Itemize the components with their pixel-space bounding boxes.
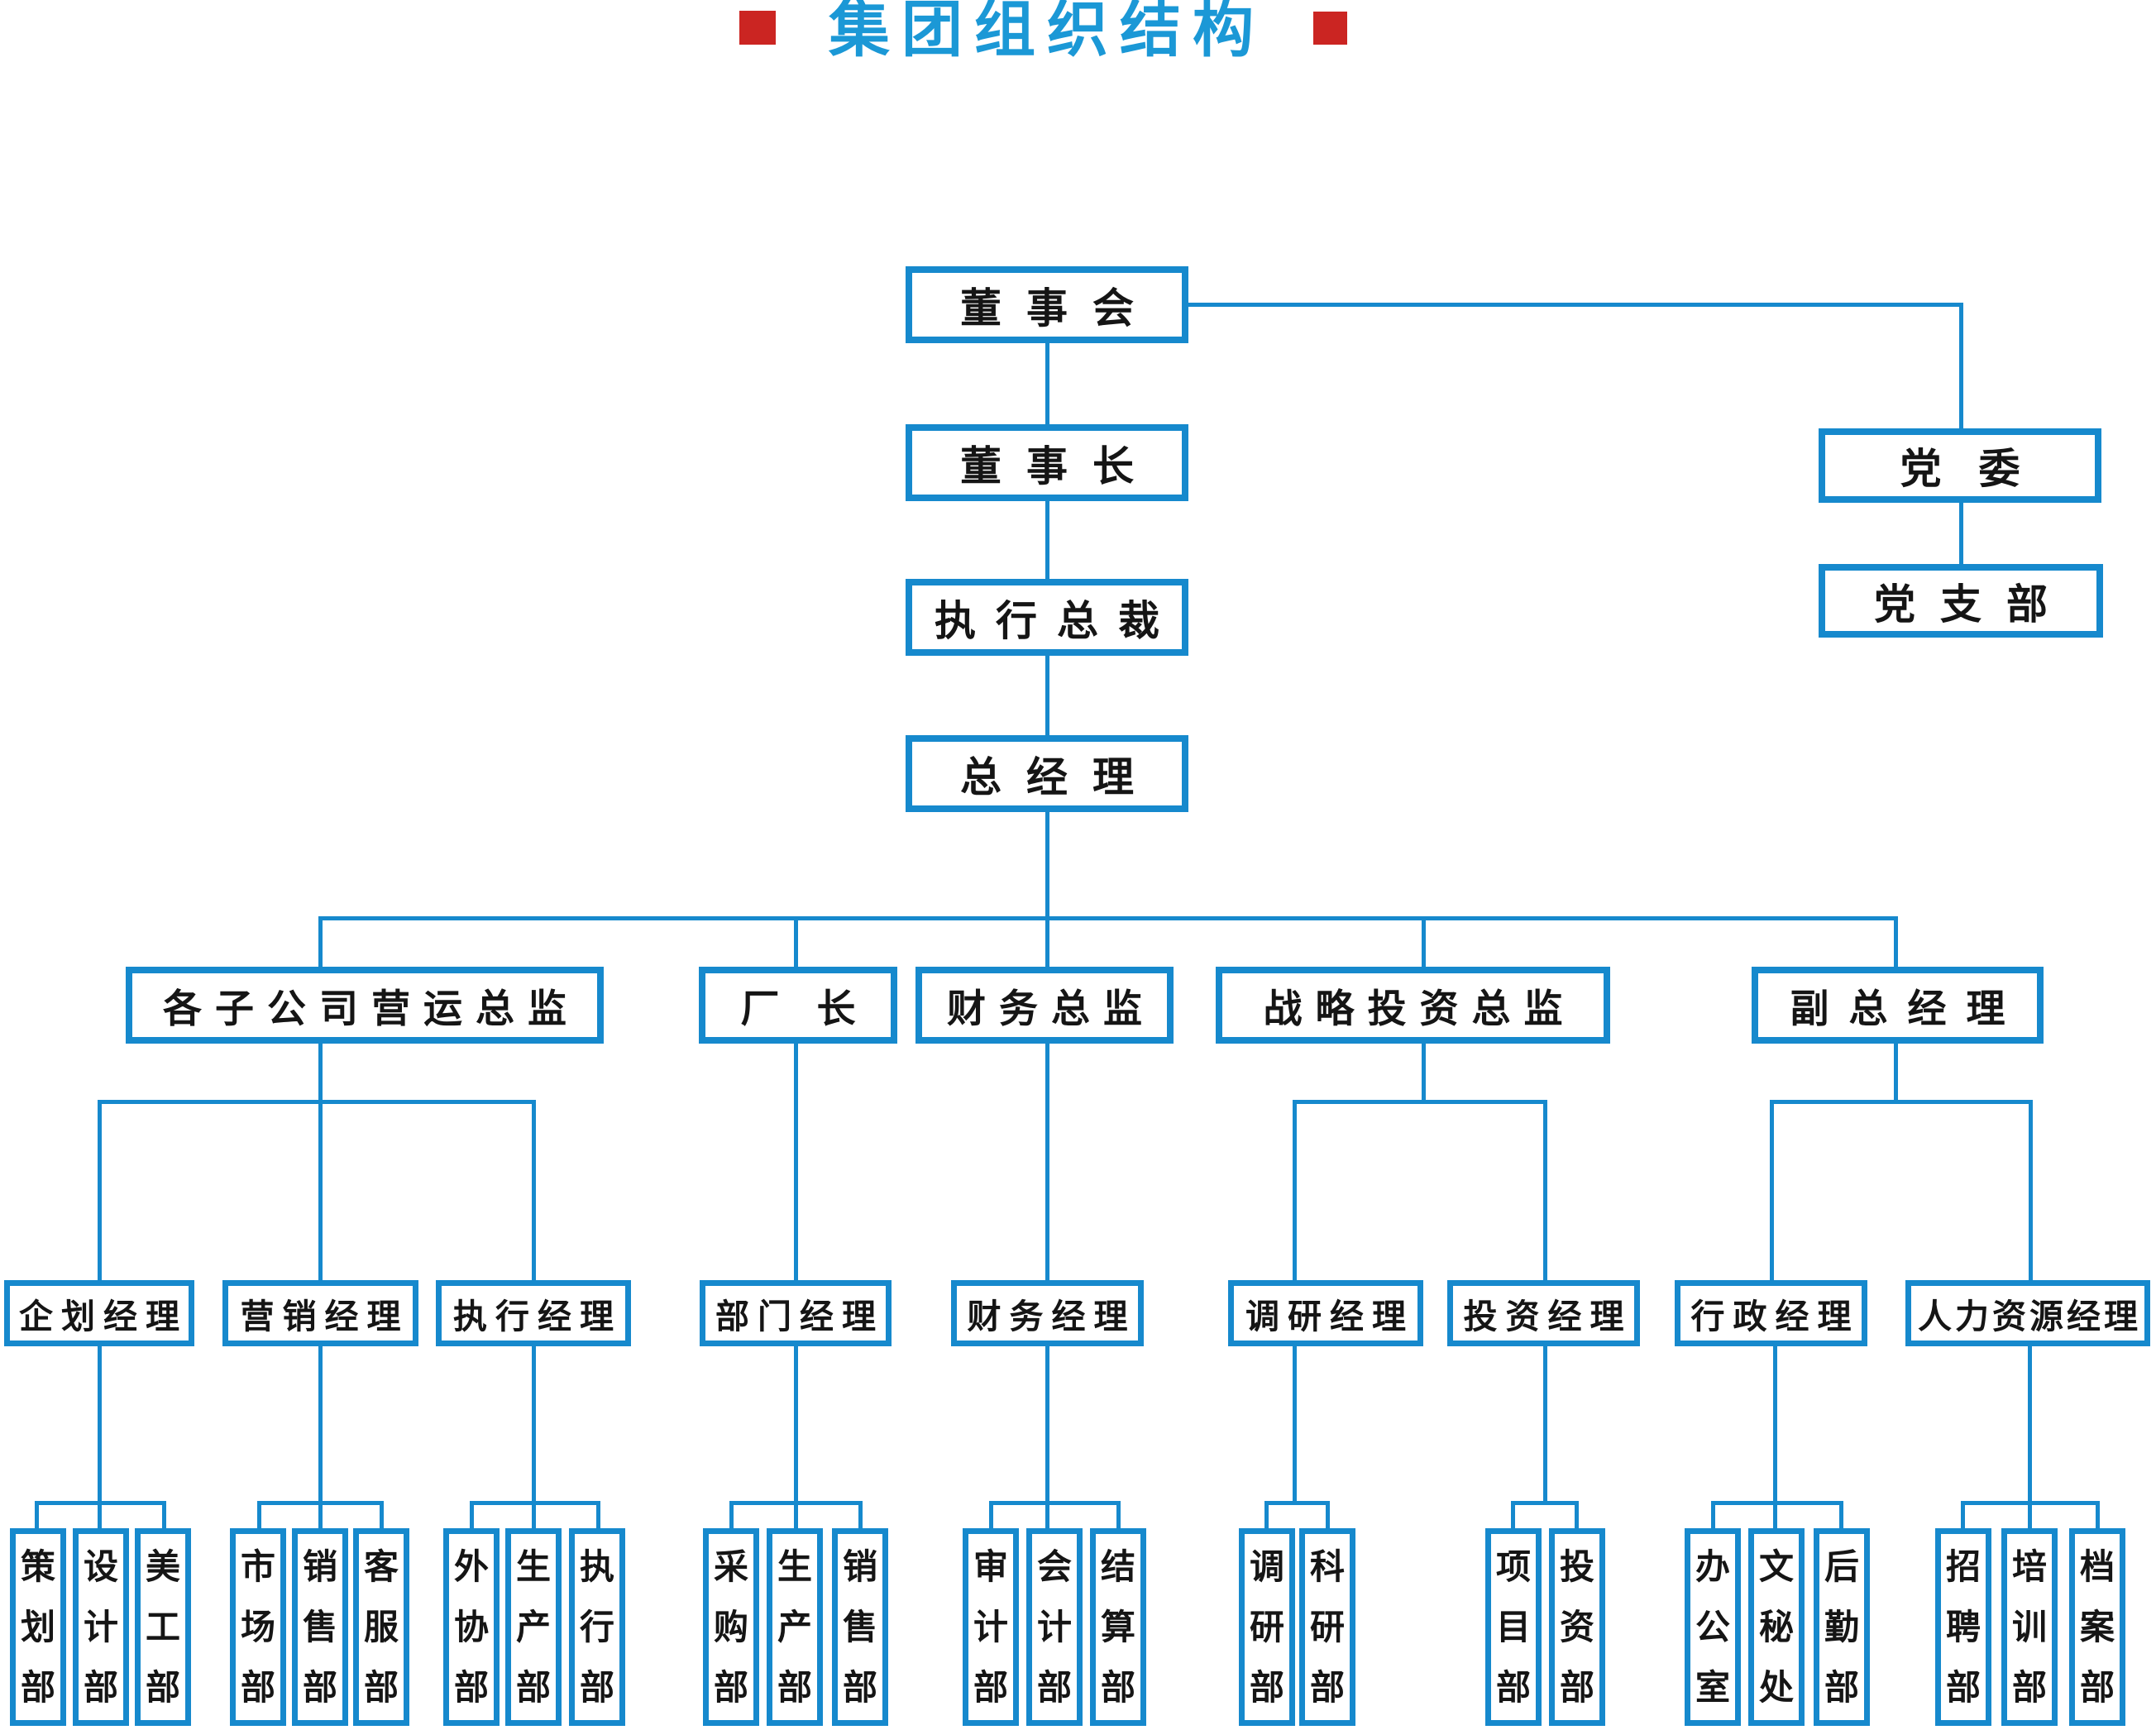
node-factory-director: 厂长: [699, 967, 897, 1044]
dept-box-planning: 策划部: [10, 1528, 66, 1726]
connector: [318, 1044, 323, 1100]
dept-box-sales: 销售部: [292, 1528, 348, 1726]
connector: [98, 1501, 102, 1528]
connector: [1264, 1501, 1330, 1528]
connector: [1511, 1501, 1579, 1528]
connector: [1770, 1100, 2033, 1280]
node-general-manager: 总经理: [906, 735, 1188, 812]
dept-box-design: 设计部: [73, 1528, 129, 1726]
dept-box-production2: 生产部: [767, 1528, 823, 1726]
node-subsidiary-ops-director: 各子公司营运总监: [126, 967, 604, 1044]
connector: [98, 1100, 536, 1280]
connector: [318, 1346, 323, 1501]
connector: [1422, 1044, 1426, 1100]
connector: [1711, 1501, 1843, 1528]
dept-box-customer-service: 客服部: [353, 1528, 409, 1726]
dept-box-research: 调研部: [1239, 1528, 1295, 1726]
dept-box-logistics: 后勤部: [1814, 1528, 1870, 1726]
connector: [1422, 916, 1426, 967]
connector: [1045, 1346, 1049, 1501]
dept-box-art: 美工部: [135, 1528, 191, 1726]
dept-box-office: 办公室: [1685, 1528, 1741, 1726]
connector: [1773, 1501, 1777, 1528]
connector: [318, 1501, 323, 1528]
dept-box-execution: 执行部: [569, 1528, 625, 1726]
node-department-manager: 部门经理: [700, 1280, 892, 1346]
connector: [318, 1100, 323, 1280]
dept-box-outsourcing: 外协部: [443, 1528, 500, 1726]
dept-box-settlement: 结算部: [1090, 1528, 1146, 1726]
connector: [1894, 1044, 1898, 1100]
dept-box-training: 培训部: [2001, 1528, 2058, 1726]
connector: [1045, 1044, 1049, 1280]
dept-box-market: 市场部: [230, 1528, 286, 1726]
connector: [1045, 500, 1049, 579]
connector: [98, 1346, 102, 1501]
node-investment-manager: 投资经理: [1447, 1280, 1640, 1346]
connector: [1959, 500, 1963, 566]
node-finance-manager: 财务经理: [951, 1280, 1144, 1346]
connector: [1045, 812, 1049, 916]
connector: [1045, 343, 1049, 424]
connector: [1188, 303, 1963, 428]
dept-box-archives: 档案部: [2069, 1528, 2125, 1726]
node-admin-manager: 行政经理: [1675, 1280, 1867, 1346]
connector: [2028, 1501, 2032, 1528]
dept-box-recruitment: 招聘部: [1935, 1528, 1991, 1726]
dept-box-project: 项目部: [1485, 1528, 1542, 1726]
node-research-manager: 调研经理: [1228, 1280, 1423, 1346]
dept-box-purchasing: 采购部: [703, 1528, 759, 1726]
dept-box-accounting: 会计部: [1026, 1528, 1083, 1726]
connector: [1045, 916, 1049, 967]
connector: [794, 1044, 798, 1280]
node-strategic-investment-director: 战略投资总监: [1216, 967, 1610, 1044]
node-planning-manager: 企划经理: [4, 1280, 194, 1346]
dept-box-investment: 投资部: [1549, 1528, 1605, 1726]
node-party-branch: 党支部: [1819, 564, 2103, 638]
dept-box-production: 生产部: [505, 1528, 562, 1726]
connector: [532, 1501, 536, 1528]
connector: [2028, 1346, 2032, 1501]
org-chart: 集团组织结构 董事会 董事长 执行总裁 总经理: [0, 0, 2156, 1730]
node-board: 董事会: [906, 266, 1188, 343]
connector: [794, 916, 798, 967]
connector: [1293, 1100, 1547, 1280]
connector: [1045, 1501, 1049, 1528]
connector: [318, 916, 1898, 967]
connector: [532, 1346, 536, 1501]
connector: [1543, 1346, 1547, 1501]
connector: [1773, 1346, 1777, 1501]
node-chairman: 董事长: [906, 424, 1188, 501]
connector: [989, 1501, 1121, 1528]
dept-box-sales2: 销售部: [832, 1528, 888, 1726]
connector: [794, 1501, 798, 1528]
connector: [794, 1346, 798, 1501]
node-execution-manager: 执行经理: [436, 1280, 631, 1346]
title-right-red-square-icon: [1313, 12, 1347, 45]
page-title: 集团组织结构: [0, 0, 2094, 66]
node-finance-director: 财务总监: [915, 967, 1174, 1044]
node-hr-manager: 人力资源经理: [1905, 1280, 2150, 1346]
node-party-committee: 党委: [1819, 428, 2101, 503]
node-marketing-manager: 营销经理: [222, 1280, 418, 1346]
connector: [1293, 1346, 1297, 1501]
dept-box-audit: 审计部: [963, 1528, 1019, 1726]
node-exec-president: 执行总裁: [906, 579, 1188, 656]
dept-box-secretary: 文秘处: [1748, 1528, 1805, 1726]
connector: [1045, 656, 1049, 735]
dept-box-scientific-research: 科研部: [1299, 1528, 1355, 1726]
node-deputy-general-manager: 副总经理: [1752, 967, 2044, 1044]
